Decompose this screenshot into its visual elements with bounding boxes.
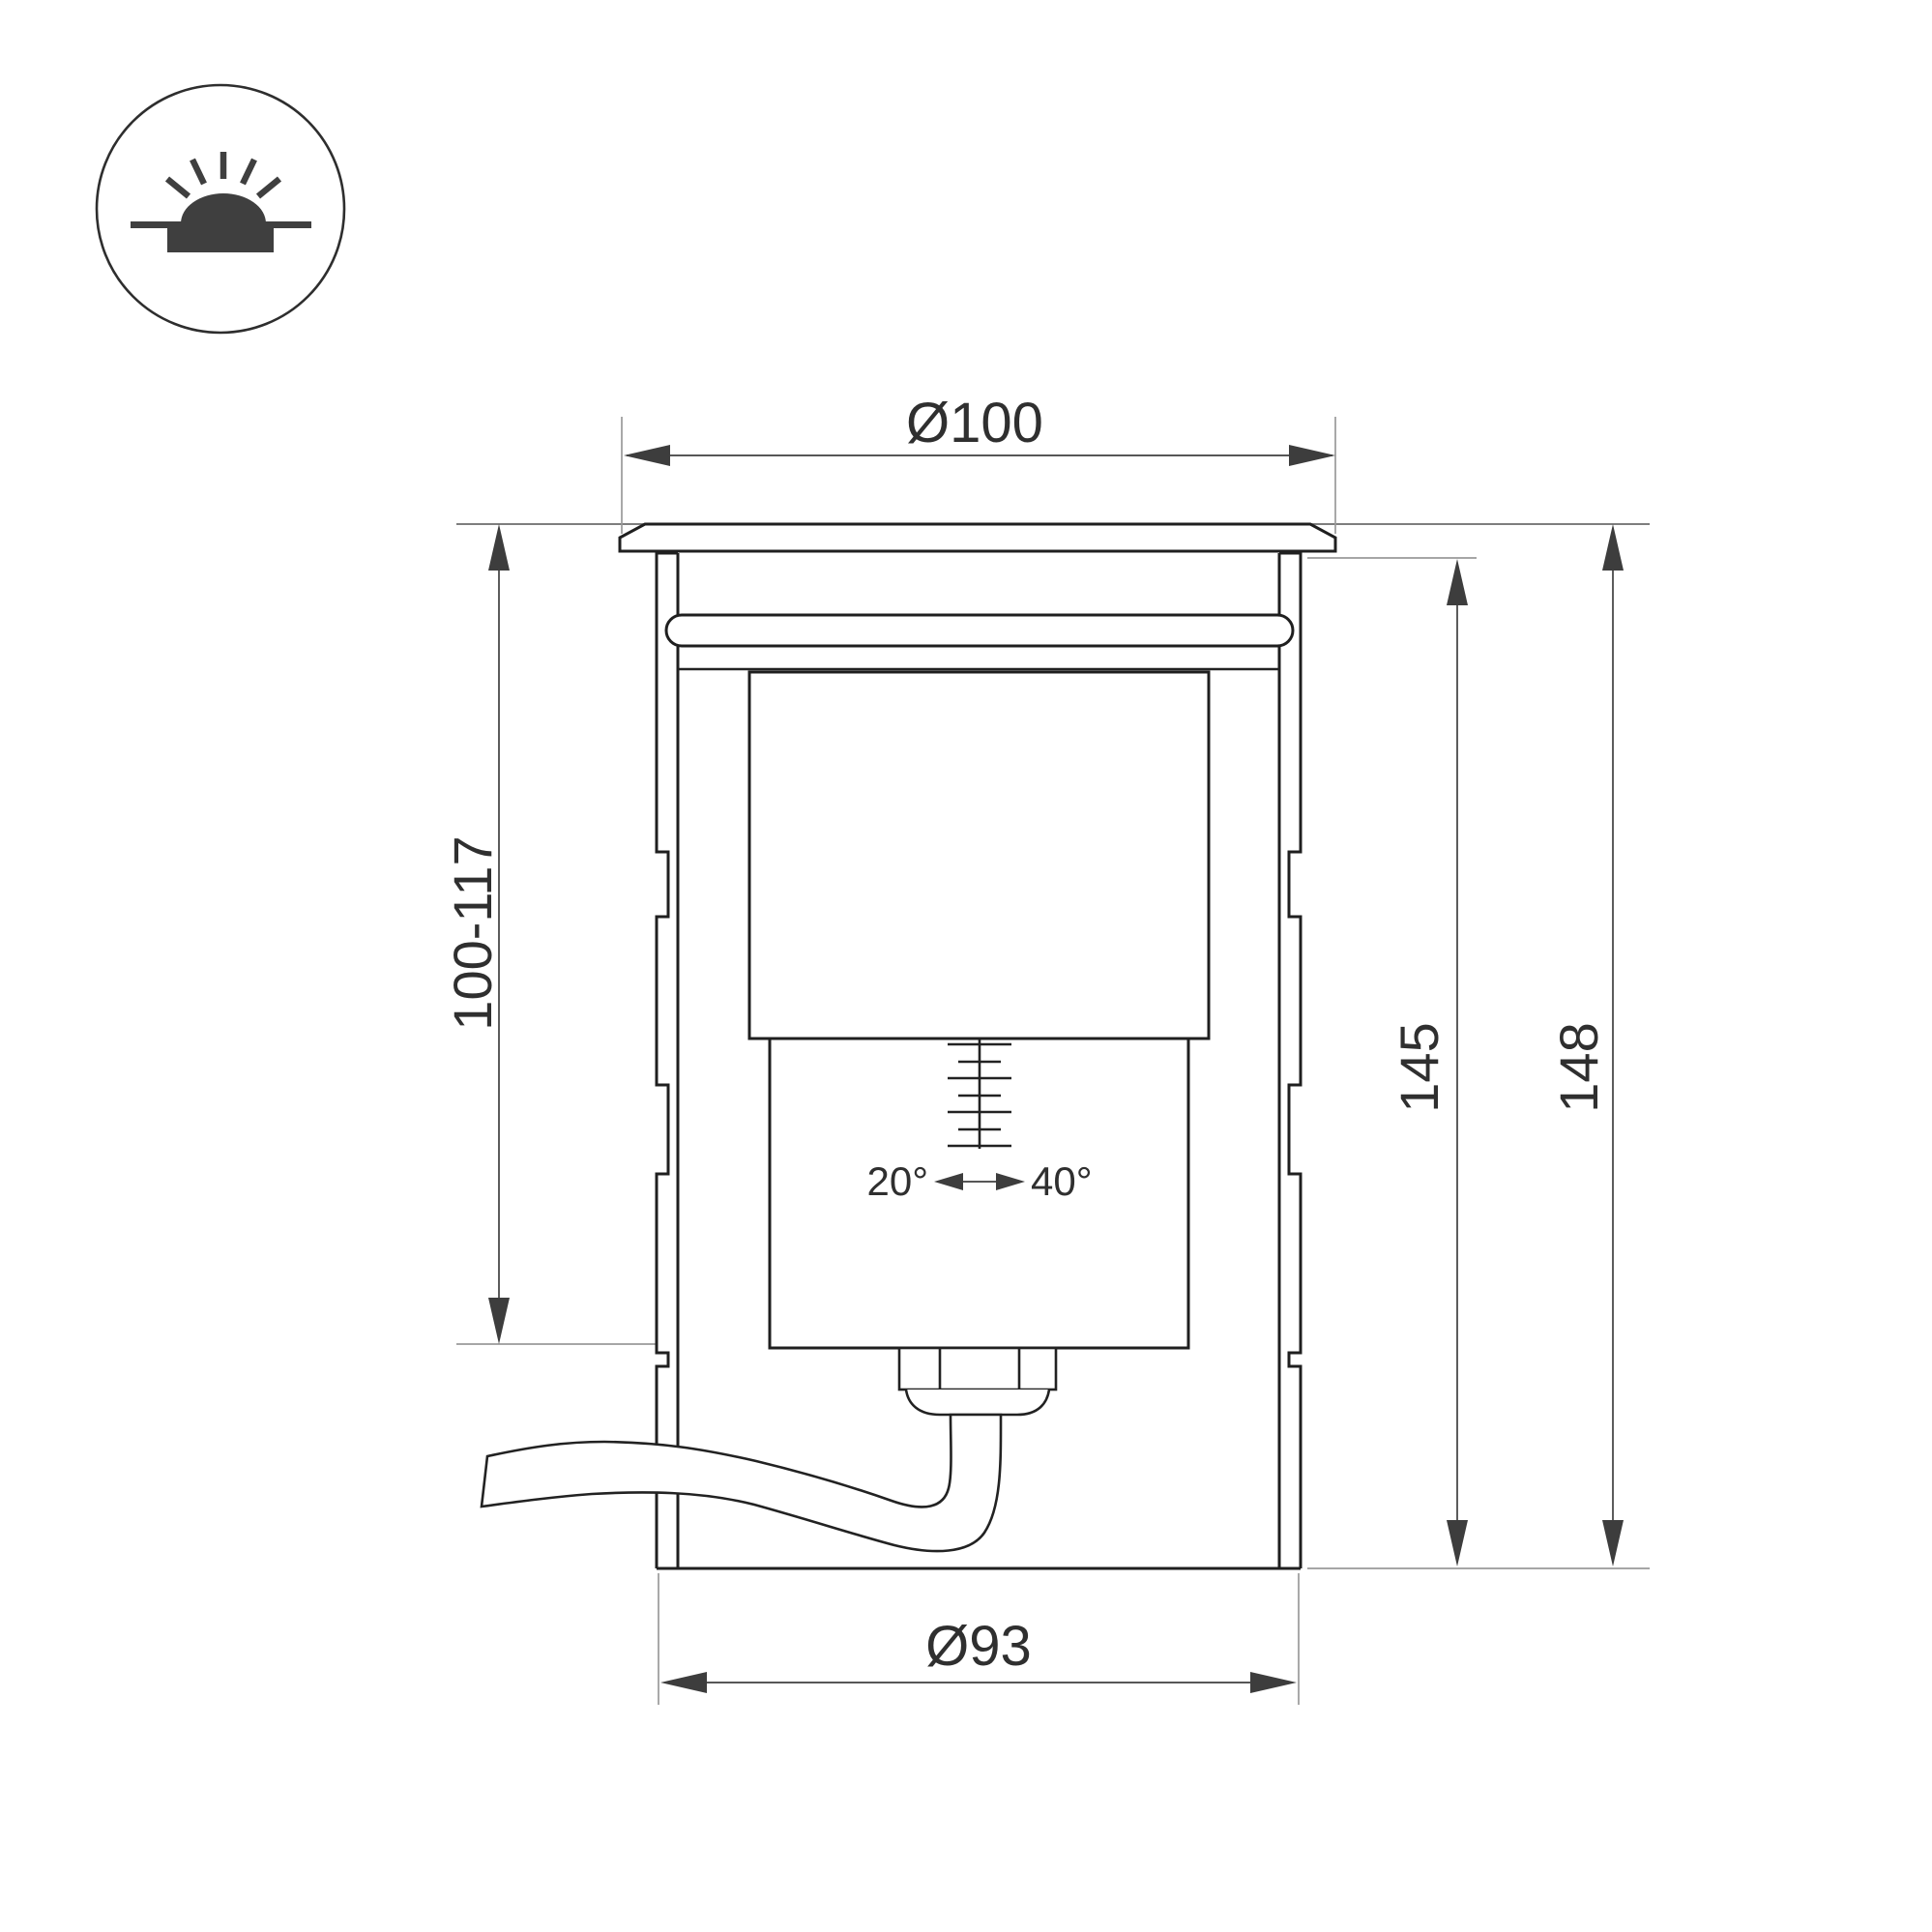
top-diameter-label: Ø100 xyxy=(906,392,1043,454)
luminaire-section: 20° 40° xyxy=(482,524,1335,1568)
gland-hex-nut xyxy=(899,1348,1056,1390)
right-wall-outer-fins xyxy=(1279,553,1301,1568)
luminaire-dimension-drawing: 20° 40° Ø100 100-117 145 xyxy=(0,0,1932,1932)
gland-dome xyxy=(906,1390,1049,1415)
arrowhead-down xyxy=(1447,1520,1468,1566)
dimension-body-height: 145 xyxy=(1389,559,1468,1566)
sealing-ring xyxy=(666,615,1293,646)
lamp-module xyxy=(749,672,1209,1039)
left-wall-outer-fins xyxy=(657,553,678,1568)
supply-cable xyxy=(482,1415,1001,1551)
arrowhead-left xyxy=(624,445,670,466)
arrowhead-up xyxy=(1447,559,1468,605)
bottom-diameter-label: Ø93 xyxy=(925,1615,1032,1678)
arrowhead-down xyxy=(488,1298,510,1344)
arrowhead-up xyxy=(488,524,510,571)
icon-lamp-dome xyxy=(181,193,266,223)
flange xyxy=(620,524,1335,551)
tilt-min-label: 20° xyxy=(866,1158,928,1204)
tilt-max-label: 40° xyxy=(1031,1158,1093,1204)
overall-height-label: 148 xyxy=(1548,1022,1609,1112)
cable-gland xyxy=(899,1348,1056,1415)
dimension-overall-height: 148 xyxy=(1548,524,1624,1566)
icon-recessed-body xyxy=(167,223,274,252)
icon-light-rays xyxy=(167,152,279,196)
dimension-recess-depth: 100-117 xyxy=(442,524,510,1344)
dimension-bottom-diameter: Ø93 xyxy=(660,1615,1297,1693)
arrowhead-right xyxy=(1250,1672,1297,1693)
arrowhead-down xyxy=(1602,1520,1624,1566)
technical-drawing-page: 20° 40° Ø100 100-117 145 xyxy=(0,0,1932,1932)
arrowhead-right xyxy=(1289,445,1335,466)
body-height-label: 145 xyxy=(1389,1022,1449,1112)
dimension-top-diameter: Ø100 xyxy=(624,392,1335,466)
arrowhead-left xyxy=(660,1672,707,1693)
recess-depth-label: 100-117 xyxy=(442,835,503,1030)
recessed-ground-luminaire-icon xyxy=(97,85,344,333)
arrowhead-up xyxy=(1602,524,1624,571)
